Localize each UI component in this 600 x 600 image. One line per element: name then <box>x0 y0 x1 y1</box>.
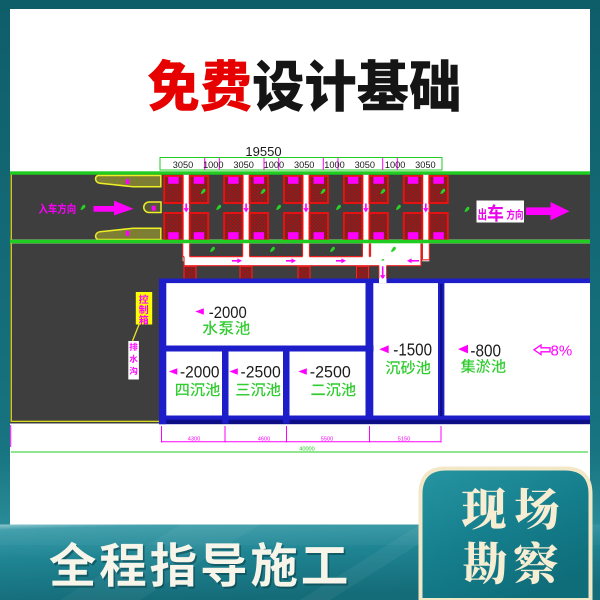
svg-text:4600: 4600 <box>258 436 270 442</box>
svg-text:5500: 5500 <box>321 436 333 442</box>
svg-text:3050: 3050 <box>233 160 253 170</box>
svg-text:8%: 8% <box>551 343 573 360</box>
svg-text:-2500: -2500 <box>310 363 351 382</box>
svg-text:-1500: -1500 <box>393 339 432 359</box>
svg-text:1000: 1000 <box>203 160 223 170</box>
svg-text:19550: 19550 <box>245 144 281 159</box>
svg-text:3050: 3050 <box>355 160 375 170</box>
svg-text:40000: 40000 <box>299 447 315 453</box>
svg-text:-2000: -2000 <box>209 303 247 322</box>
svg-text:-2500: -2500 <box>241 363 281 382</box>
svg-text:4300: 4300 <box>188 436 200 442</box>
svg-text:3050: 3050 <box>173 160 193 170</box>
svg-text:3050: 3050 <box>415 160 435 170</box>
svg-text:1000: 1000 <box>385 160 405 170</box>
svg-text:-2000: -2000 <box>180 363 220 382</box>
svg-text:1000: 1000 <box>324 160 344 170</box>
svg-text:1000: 1000 <box>264 160 284 170</box>
svg-text:5150: 5150 <box>398 436 410 442</box>
svg-text:3050: 3050 <box>294 160 314 170</box>
svg-text:-800: -800 <box>470 340 501 360</box>
